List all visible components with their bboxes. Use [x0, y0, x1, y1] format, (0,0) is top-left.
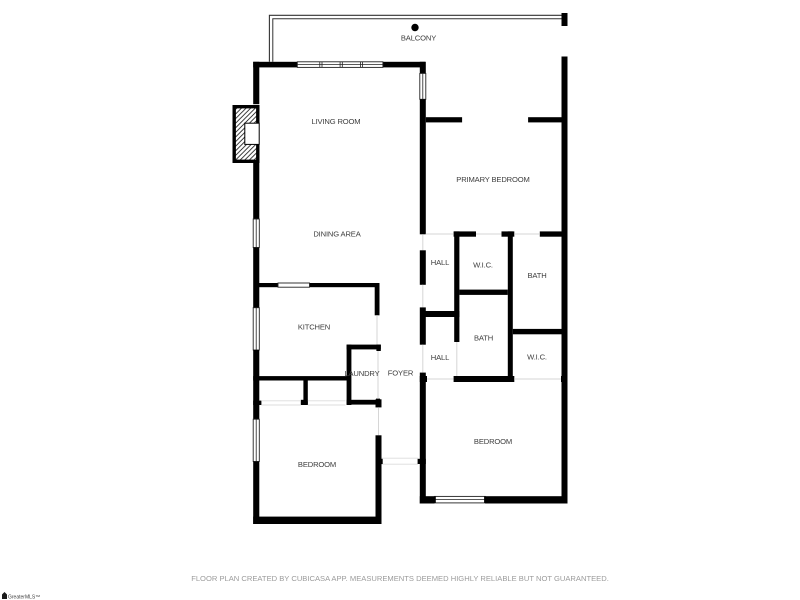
svg-text:BEDROOM: BEDROOM: [474, 437, 512, 446]
svg-text:HALL: HALL: [431, 258, 449, 267]
svg-text:BEDROOM: BEDROOM: [298, 460, 336, 469]
svg-text:LIVING ROOM: LIVING ROOM: [312, 117, 361, 126]
svg-text:PRIMARY BEDROOM: PRIMARY BEDROOM: [456, 175, 529, 184]
svg-text:HALL: HALL: [431, 353, 449, 362]
svg-text:BALCONY: BALCONY: [401, 34, 436, 43]
svg-text:DINING AREA: DINING AREA: [313, 230, 361, 239]
svg-text:FLOOR PLAN CREATED BY CUBICASA: FLOOR PLAN CREATED BY CUBICASA APP. MEAS…: [191, 574, 609, 583]
svg-text:FOYER: FOYER: [388, 369, 414, 378]
svg-text:KITCHEN: KITCHEN: [298, 323, 330, 332]
svg-text:GreaterMLS™: GreaterMLS™: [8, 595, 40, 600]
svg-text:BATH: BATH: [474, 334, 493, 343]
svg-text:BATH: BATH: [527, 271, 546, 280]
svg-text:W.I.C.: W.I.C.: [527, 353, 547, 362]
svg-text:W.I.C.: W.I.C.: [473, 261, 493, 270]
svg-text:LAUNDRY: LAUNDRY: [344, 369, 379, 378]
